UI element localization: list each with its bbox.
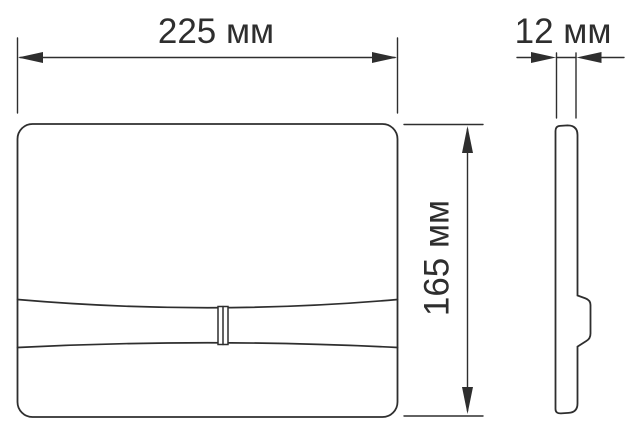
flush-plate-dimension-drawing: 225 мм 12 мм 165 мм [0,0,629,436]
front-view-outline [18,124,398,417]
arrow-left-icon [18,52,43,63]
drawing-linework [0,0,629,436]
arrow-up-icon [462,126,473,153]
thickness-dimension [517,52,624,118]
thickness-dimension-label: 12 мм [515,14,612,49]
side-view-outline [556,125,591,413]
arrow-inward-right-icon [531,52,556,63]
button-split-divider [218,307,228,345]
height-dimension-label: 165 мм [420,200,455,316]
arrow-down-icon [462,387,473,414]
arrow-inward-left-icon [577,52,602,63]
arrow-right-icon [372,52,397,63]
width-dimension-label: 225 мм [158,14,274,49]
